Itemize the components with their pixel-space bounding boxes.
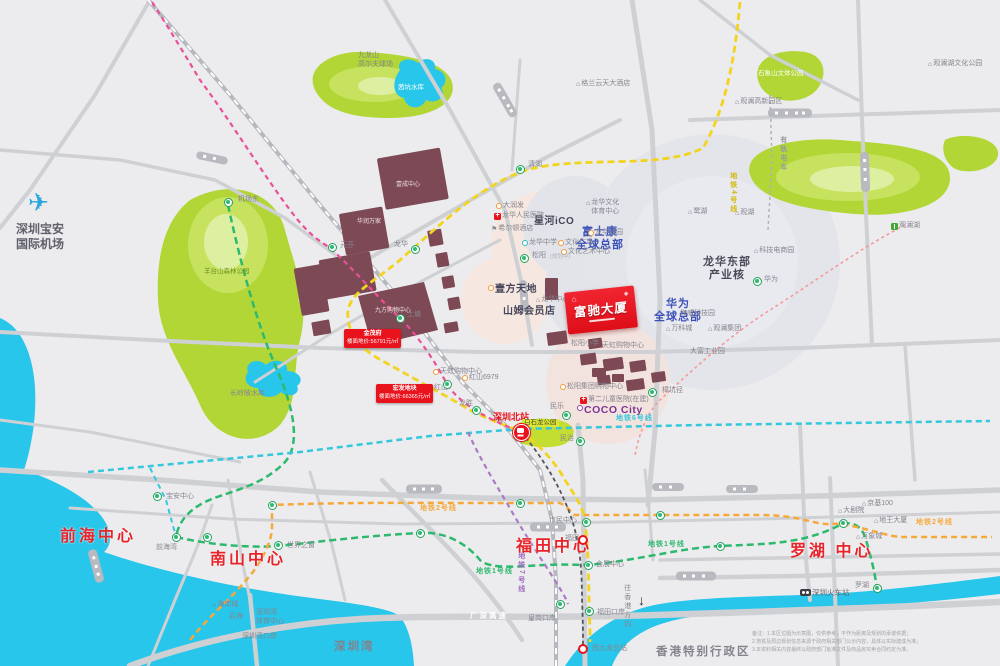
note-line: 3.本资料相关内容最终以政府部门批准文件及商品房买卖合同约定为准。 — [752, 646, 921, 654]
project-name: 富驰大厦 — [574, 296, 628, 321]
note-line: 2.地铁及周边规划信息来源于政府相关部门公示内容，具体以实际建成为准； — [752, 638, 921, 646]
note-line: 备注：1.本区位图为示意图，仅供参考，不作为距离及规划的承诺依据； — [752, 630, 921, 638]
project-building: ⌂ ◈ 富驰大厦 — [564, 285, 638, 334]
map-base-art — [0, 0, 1000, 666]
map-canvas[interactable]: 富士康 全球总部华为 全球总部龙华东部 产业核星河iCO壹方天地山姆会员店COC… — [0, 0, 1000, 666]
disclaimer-notes: 备注：1.本区位图为示意图，仅供参考，不作为距离及规划的承诺依据；2.地铁及周边… — [752, 630, 921, 654]
